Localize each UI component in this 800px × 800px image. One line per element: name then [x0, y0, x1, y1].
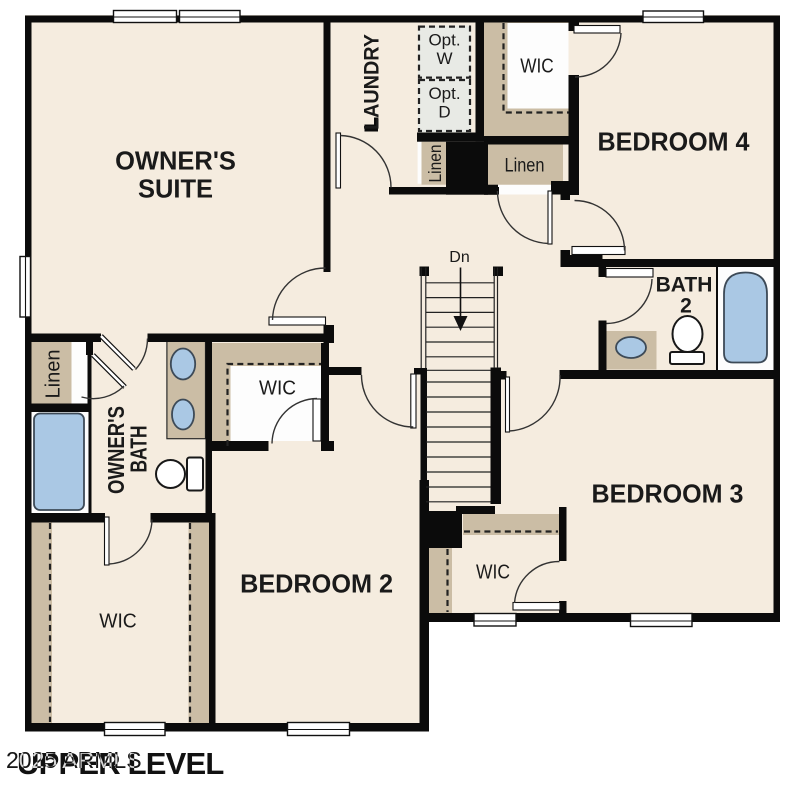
svg-text:Linen: Linen [505, 156, 545, 177]
svg-text:Opt.: Opt. [428, 31, 460, 50]
svg-text:BEDROOM 2: BEDROOM 2 [240, 569, 393, 599]
svg-text:SUITE: SUITE [138, 176, 213, 204]
svg-text:BATH: BATH [126, 426, 152, 473]
svg-text:D: D [438, 103, 450, 122]
svg-text:WIC: WIC [99, 610, 137, 633]
svg-text:BEDROOM 3: BEDROOM 3 [592, 479, 744, 509]
svg-text:WIC: WIC [520, 55, 554, 78]
svg-text:W: W [436, 49, 452, 68]
svg-text:WIC: WIC [476, 561, 510, 584]
svg-text:Linen: Linen [425, 145, 445, 183]
svg-text:Linen: Linen [43, 350, 65, 399]
svg-text:OWNER'S: OWNER'S [115, 148, 236, 176]
svg-text:WIC: WIC [259, 378, 296, 400]
svg-text:2: 2 [680, 295, 692, 318]
svg-text:LAUNDRY: LAUNDRY [361, 34, 384, 130]
svg-text:Opt.: Opt. [428, 84, 460, 103]
svg-text:BEDROOM 4: BEDROOM 4 [598, 127, 751, 157]
svg-text:Dn: Dn [449, 249, 469, 266]
svg-text:BATH: BATH [656, 274, 713, 297]
